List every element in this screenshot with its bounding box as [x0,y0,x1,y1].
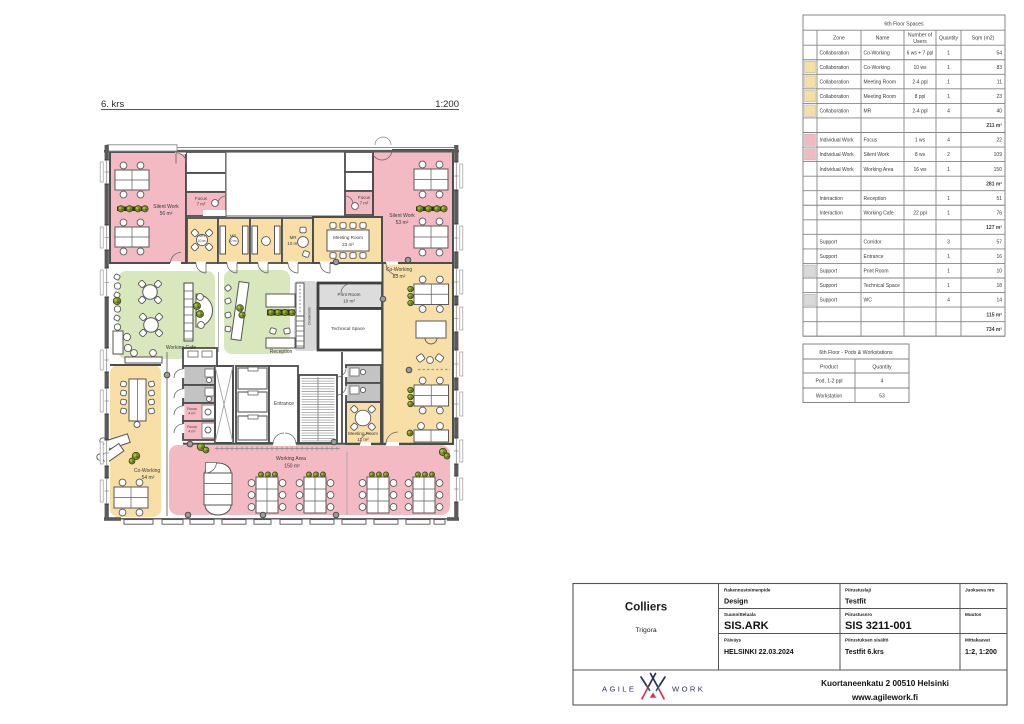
svg-text:23 m²: 23 m² [342,242,354,247]
svg-text:Users: Users [913,39,927,45]
svg-text:10 ws: 10 ws [913,65,927,71]
svg-text:Focus: Focus [864,138,878,144]
svg-text:2-4 ppl: 2-4 ppl [912,109,927,115]
svg-text:150: 150 [994,167,1003,173]
svg-text:Entrance: Entrance [274,401,294,407]
svg-text:4: 4 [947,138,950,144]
svg-text:Corridor: Corridor [864,240,882,246]
svg-text:16 ws: 16 ws [913,167,927,173]
svg-text:211 m²: 211 m² [986,123,1002,129]
svg-text:Working Area: Working Area [864,167,894,173]
svg-text:7 m²: 7 m² [360,201,369,206]
svg-text:16: 16 [996,254,1002,260]
svg-text:Individual Work: Individual Work [820,152,855,158]
svg-text:1: 1 [947,94,950,100]
svg-text:Suunnitteluala: Suunnitteluala [724,612,756,617]
svg-text:10 m²: 10 m² [198,239,208,243]
svg-text:Focus: Focus [187,425,197,429]
svg-text:Cloakroom: Cloakroom [308,307,312,325]
svg-text:281 m²: 281 m² [986,181,1002,187]
svg-text:Co-Working: Co-Working [864,65,891,71]
svg-text:10: 10 [996,269,1002,275]
svg-text:8 ws: 8 ws [915,152,926,158]
svg-text:Support: Support [820,283,838,289]
svg-text:Juokseva nro: Juokseva nro [965,588,995,593]
svg-text:Silent Work: Silent Work [389,213,415,219]
svg-text:14: 14 [996,298,1002,304]
svg-text:Collaboration: Collaboration [820,94,850,100]
svg-text:Support: Support [820,254,838,260]
svg-text:1: 1 [947,167,950,173]
svg-text:Meeting Room: Meeting Room [348,431,378,436]
svg-text:AGILE: AGILE [602,685,636,694]
svg-text:1: 1 [947,196,950,202]
svg-text:Name: Name [876,36,890,42]
svg-text:Testfit: Testfit [845,597,867,606]
svg-text:Zone: Zone [833,36,845,42]
svg-text:MR: MR [290,235,297,240]
svg-text:1 ws: 1 ws [915,138,926,144]
svg-text:Entrance: Entrance [864,254,884,260]
svg-text:6. krs: 6. krs [101,99,124,110]
svg-text:Support: Support [820,240,838,246]
svg-text:Number of: Number of [908,33,933,39]
svg-text:11 m²: 11 m² [357,437,369,442]
svg-text:WC: WC [864,298,873,304]
svg-text:1: 1 [947,283,950,289]
svg-text:109: 109 [994,152,1003,158]
svg-text:Rakennustoimenpide: Rakennustoimenpide [724,588,771,593]
svg-text:Testfit 6.krs: Testfit 6.krs [845,649,884,656]
svg-text:Sqm (m2): Sqm (m2) [972,36,995,42]
svg-text:Kuortaneenkatu 2 00510 Helsink: Kuortaneenkatu 2 00510 Helsinki [821,679,949,688]
svg-text:Support: Support [820,298,838,304]
svg-text:2: 2 [947,152,950,158]
svg-text:1: 1 [947,254,950,260]
svg-text:54: 54 [996,50,1002,56]
svg-text:Co-Working: Co-Working [864,50,891,56]
svg-text:HELSINKI 22.03.2024: HELSINKI 22.03.2024 [724,649,794,656]
svg-text:4: 4 [881,379,884,385]
svg-text:22 ppl: 22 ppl [913,210,927,216]
svg-text:1: 1 [947,65,950,71]
svg-text:MR: MR [230,234,236,238]
svg-text:Design: Design [724,597,748,606]
svg-text:734 m²: 734 m² [986,327,1002,333]
svg-text:1: 1 [947,269,950,275]
svg-text:1: 1 [947,50,950,56]
svg-text:Workstation: Workstation [816,394,843,400]
svg-text:Meeting Room: Meeting Room [864,79,897,85]
svg-text:1: 1 [947,210,950,216]
svg-text:40: 40 [996,109,1002,115]
svg-text:WORK: WORK [672,685,705,694]
svg-text:1:2, 1:200: 1:2, 1:200 [965,649,997,656]
svg-text:4: 4 [947,298,950,304]
svg-text:53: 53 [879,394,885,400]
svg-text:4 m²: 4 m² [188,430,196,434]
svg-text:Piirustusnro: Piirustusnro [845,612,872,617]
svg-text:Piirustuslaji: Piirustuslaji [845,588,871,593]
svg-text:Co-Working: Co-Working [134,468,161,474]
svg-text:57: 57 [996,240,1002,246]
svg-text:2-4 ppl: 2-4 ppl [912,79,927,85]
svg-text:Individual Work: Individual Work [820,167,855,173]
svg-text:127 m²: 127 m² [986,225,1002,231]
svg-text:150 m²: 150 m² [284,464,300,470]
svg-text:www.agilework.fi: www.agilework.fi [851,693,918,702]
svg-text:56 m²: 56 m² [160,211,173,217]
svg-text:4 m²: 4 m² [188,412,196,416]
svg-text:Individual Work: Individual Work [820,138,855,144]
svg-text:Reception: Reception [864,196,887,202]
svg-text:Muutos: Muutos [965,612,982,617]
svg-text:8 ppl: 8 ppl [915,94,926,100]
svg-text:Focus: Focus [358,195,371,200]
svg-text:Collaboration: Collaboration [820,65,850,71]
svg-text:76: 76 [996,210,1002,216]
svg-text:MR: MR [199,234,205,238]
svg-text:18: 18 [996,283,1002,289]
svg-text:SIS.ARK: SIS.ARK [724,620,769,632]
svg-text:Quantity: Quantity [939,36,959,42]
svg-text:MR: MR [864,109,872,115]
svg-text:7 m²: 7 m² [197,202,206,207]
svg-text:Support: Support [820,269,838,275]
svg-text:SIS 3211-001: SIS 3211-001 [845,620,912,632]
svg-text:Quantity: Quantity [872,364,892,370]
svg-text:Colliers: Colliers [625,602,667,614]
svg-text:6th Floor - Pods & Workstation: 6th Floor - Pods & Workstations [819,350,893,356]
svg-text:Meeting Room: Meeting Room [333,235,363,240]
svg-text:6 ws + 7 ppl: 6 ws + 7 ppl [907,50,934,56]
svg-text:115 m²: 115 m² [986,312,1002,318]
svg-text:1:200: 1:200 [435,99,459,110]
svg-text:Meeting Room: Meeting Room [864,94,897,100]
svg-text:Focus: Focus [187,407,197,411]
svg-text:Pod, 1-2 ppl: Pod, 1-2 ppl [816,379,843,385]
svg-text:4: 4 [947,109,950,115]
svg-text:11: 11 [997,79,1002,85]
svg-text:Trigora: Trigora [635,627,656,634]
svg-text:3: 3 [947,240,950,246]
svg-text:Print Room: Print Room [864,269,889,275]
svg-text:Focus: Focus [195,196,208,201]
svg-text:Reception: Reception [270,349,293,355]
svg-text:22: 22 [996,138,1002,144]
svg-text:23: 23 [996,94,1002,100]
svg-text:10 m²: 10 m² [229,239,239,243]
svg-text:54 m²: 54 m² [142,475,155,481]
svg-text:Interaction: Interaction [820,196,844,202]
svg-text:10 m²: 10 m² [343,299,355,304]
svg-text:Mittakaavat: Mittakaavat [965,638,990,643]
svg-text:Working Cafe: Working Cafe [864,210,894,216]
svg-text:Silent Work: Silent Work [153,204,179,210]
svg-text:Product: Product [820,364,838,370]
svg-text:Collaboration: Collaboration [820,50,850,56]
svg-text:Working Cafe: Working Cafe [166,345,196,351]
svg-text:Silent Work: Silent Work [864,152,890,158]
svg-text:Collaboration: Collaboration [820,109,850,115]
svg-text:Working Area: Working Area [276,456,306,462]
svg-text:Interaction: Interaction [820,210,844,216]
svg-text:Päiväys: Päiväys [724,638,742,643]
svg-text:1: 1 [947,79,950,85]
svg-text:83: 83 [996,65,1002,71]
svg-text:Technical Space: Technical Space [864,283,901,289]
svg-text:Technical Space: Technical Space [331,326,365,331]
svg-text:51: 51 [996,196,1002,202]
svg-text:Collaboration: Collaboration [820,79,850,85]
svg-text:6th Floor Spaces: 6th Floor Spaces [884,22,924,28]
svg-text:Piirustuksen sisältö: Piirustuksen sisältö [845,638,889,643]
svg-text:53 m²: 53 m² [396,220,409,226]
